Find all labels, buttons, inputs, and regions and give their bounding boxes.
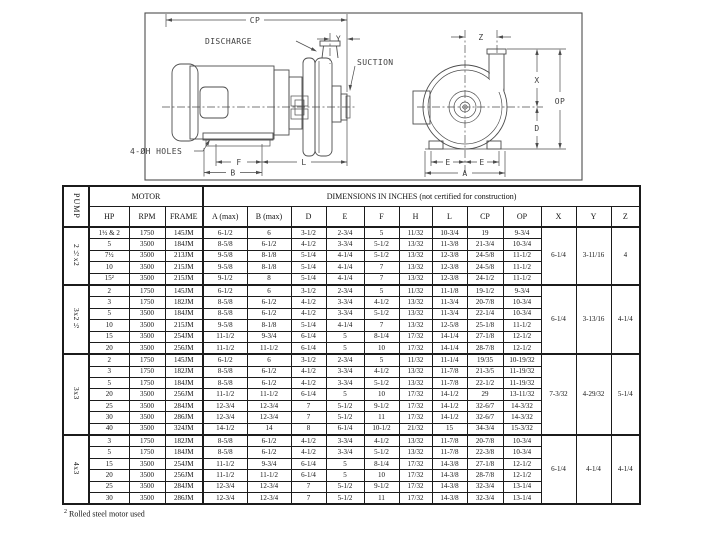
dim-cell: 6-1/2 bbox=[247, 435, 291, 447]
dim-cell: 32-3/4 bbox=[467, 492, 503, 504]
dim-cell: 6-1/4 bbox=[326, 423, 364, 435]
dim-cell: 5-1/2 bbox=[364, 378, 399, 389]
dim-cell: 4-1/4 bbox=[326, 250, 364, 261]
dim-cell: 5-1/2 bbox=[326, 492, 364, 504]
pump-size-cell: 3x3 bbox=[63, 354, 89, 435]
f-dim-label: F bbox=[236, 158, 241, 167]
dim-cell: 286JM bbox=[165, 492, 203, 504]
x-span-cell: 6-1/4 bbox=[541, 435, 576, 504]
dim-cell: 11-3/4 bbox=[432, 297, 467, 308]
y-span-cell: 3-13/16 bbox=[576, 285, 611, 354]
col-header-cp: CP bbox=[467, 207, 503, 228]
dim-cell: 17/32 bbox=[399, 412, 432, 423]
motor-end-cap bbox=[172, 64, 198, 141]
dim-cell: 4-1/2 bbox=[291, 447, 326, 458]
dim-cell: 19/35 bbox=[467, 354, 503, 366]
e-left-dim-label: E bbox=[445, 158, 450, 167]
dim-cell: 10-3/4 bbox=[503, 239, 541, 250]
header-row-2: HP RPM FRAME A (max) B (max) D E F H L C… bbox=[63, 207, 640, 228]
dim-cell: 17/32 bbox=[399, 342, 432, 354]
suction-leader bbox=[351, 66, 356, 87]
dim-cell: 4-1/2 bbox=[291, 378, 326, 389]
col-header-l: L bbox=[432, 207, 467, 228]
dim-cell: 4-1/4 bbox=[326, 273, 364, 285]
dim-cell: 2-3/4 bbox=[326, 227, 364, 239]
dim-cell: 14-1/2 bbox=[432, 389, 467, 400]
dim-cell: 3500 bbox=[129, 273, 165, 285]
dim-cell: 34-3/4 bbox=[467, 423, 503, 435]
dim-cell: 215JM bbox=[165, 273, 203, 285]
col-header-f: F bbox=[364, 207, 399, 228]
pump-size-text: 2½x2 bbox=[72, 244, 80, 266]
dim-cell: 40 bbox=[89, 423, 129, 435]
y-span-cell: 4-29/32 bbox=[576, 354, 611, 435]
col-header-rpm: RPM bbox=[129, 207, 165, 228]
dim-cell: 32-6/7 bbox=[467, 412, 503, 423]
dim-cell: 3-1/2 bbox=[291, 285, 326, 297]
dim-cell: 13-11/32 bbox=[503, 389, 541, 400]
dim-cell: 1½ & 2 bbox=[89, 227, 129, 239]
dim-cell: 1750 bbox=[129, 447, 165, 458]
table-row: 3x2½21750145JM6-1/263-1/22-3/4511/3211-1… bbox=[63, 285, 640, 297]
f-arrow-right bbox=[256, 160, 262, 163]
dim-cell: 5-1/2 bbox=[326, 412, 364, 423]
dim-cell: 7 bbox=[291, 400, 326, 411]
dim-cell: 20-7/8 bbox=[467, 297, 503, 308]
dim-cell: 12-3/4 bbox=[247, 492, 291, 504]
dim-cell: 7 bbox=[364, 320, 399, 331]
dim-cell: 3500 bbox=[129, 400, 165, 411]
dim-cell: 14-1/2 bbox=[432, 412, 467, 423]
y-arrow-left bbox=[324, 37, 330, 40]
e-right-arrow-outer bbox=[493, 160, 499, 163]
dim-cell: 6 bbox=[247, 285, 291, 297]
dim-cell: 2 bbox=[89, 354, 129, 366]
dim-cell: 32-3/4 bbox=[467, 481, 503, 492]
dim-cell: 17/32 bbox=[399, 389, 432, 400]
dim-cell: 6-1/2 bbox=[247, 366, 291, 377]
dim-cell: 324JM bbox=[165, 423, 203, 435]
dim-cell: 7½ bbox=[89, 250, 129, 261]
dim-cell: 21-3/4 bbox=[467, 239, 503, 250]
dim-cell: 254JM bbox=[165, 458, 203, 469]
dim-cell: 12-3/4 bbox=[203, 400, 247, 411]
dim-cell: 15 bbox=[89, 331, 129, 342]
spec-sheet-page: { "drawing": { "labels": { "cp": "CP", "… bbox=[0, 0, 704, 535]
dim-cell: 6-1/4 bbox=[291, 342, 326, 354]
dim-cell: 284JM bbox=[165, 400, 203, 411]
suction-label: SUCTION bbox=[357, 58, 394, 67]
col-header-x: X bbox=[541, 207, 576, 228]
dim-cell: 10-19/32 bbox=[503, 354, 541, 366]
dim-cell: 3-3/4 bbox=[326, 239, 364, 250]
dim-cell: 8 bbox=[291, 423, 326, 435]
dim-cell: 182JM bbox=[165, 297, 203, 308]
dim-cell: 215JM bbox=[165, 320, 203, 331]
dim-cell: 13/32 bbox=[399, 308, 432, 319]
dim-cell: 13/32 bbox=[399, 447, 432, 458]
dim-cell: 3500 bbox=[129, 239, 165, 250]
dim-cell: 5 bbox=[364, 354, 399, 366]
dim-cell: 254JM bbox=[165, 331, 203, 342]
dim-cell: 11-1/2 bbox=[247, 470, 291, 481]
dimension-table-section: PUMP MOTOR DIMENSIONS IN INCHES (not cer… bbox=[62, 185, 639, 519]
x-arrow-top bbox=[535, 49, 538, 55]
dim-cell: 4-1/2 bbox=[364, 435, 399, 447]
dim-cell: 17/32 bbox=[399, 400, 432, 411]
dim-cell: 22-1/4 bbox=[467, 308, 503, 319]
dim-cell: 17/32 bbox=[399, 331, 432, 342]
side-view-dimensions: CP Y DISCHARGE SUCTION 4-ØH HOLES F L B bbox=[130, 14, 394, 178]
footnote-marker: 2 bbox=[64, 509, 67, 515]
dim-cell: 3500 bbox=[129, 331, 165, 342]
dim-cell: 213JM bbox=[165, 250, 203, 261]
col-header-hp: HP bbox=[89, 207, 129, 228]
right-foot bbox=[487, 141, 501, 149]
dim-cell: 12-3/8 bbox=[432, 262, 467, 273]
dim-cell: 11-7/8 bbox=[432, 378, 467, 389]
pump-outline-drawing: CP Y DISCHARGE SUCTION 4-ØH HOLES F L B bbox=[0, 0, 704, 185]
dim-cell: 11-7/8 bbox=[432, 366, 467, 377]
d-arrow-bottom bbox=[535, 143, 538, 149]
dim-cell: 12-3/4 bbox=[203, 492, 247, 504]
dim-cell: 6-1/4 bbox=[291, 331, 326, 342]
z-span-cell: 4-1/4 bbox=[611, 435, 640, 504]
dim-cell: 12-1/2 bbox=[503, 342, 541, 354]
dim-cell: 3-3/4 bbox=[326, 447, 364, 458]
dim-cell: 3500 bbox=[129, 342, 165, 354]
suction-leader-arrow bbox=[349, 85, 352, 91]
dim-cell: 7 bbox=[364, 273, 399, 285]
a-dim-label: A bbox=[462, 169, 467, 178]
x-span-cell: 6-1/4 bbox=[541, 285, 576, 354]
x-dim-label: X bbox=[534, 76, 539, 85]
dim-cell: 5 bbox=[89, 239, 129, 250]
dim-cell: 20 bbox=[89, 342, 129, 354]
dim-cell: 184JM bbox=[165, 447, 203, 458]
dim-cell: 4-1/4 bbox=[326, 320, 364, 331]
col-header-e: E bbox=[326, 207, 364, 228]
dim-cell: 14-3/8 bbox=[432, 492, 467, 504]
dim-cell: 14-3/8 bbox=[432, 470, 467, 481]
dim-cell: 3500 bbox=[129, 320, 165, 331]
dim-cell: 10-1/2 bbox=[364, 423, 399, 435]
dim-cell: 22-1/2 bbox=[467, 378, 503, 389]
dim-cell: 28-7/8 bbox=[467, 342, 503, 354]
dim-cell: 13/32 bbox=[399, 273, 432, 285]
dim-cell: 3500 bbox=[129, 481, 165, 492]
dim-cell: 10-3/4 bbox=[503, 297, 541, 308]
dim-cell: 11-1/8 bbox=[432, 285, 467, 297]
l-dim-label: L bbox=[301, 158, 306, 167]
dim-cell: 5-1/2 bbox=[364, 447, 399, 458]
op-arrow-bottom bbox=[558, 143, 561, 149]
dim-cell: 3500 bbox=[129, 458, 165, 469]
dim-cell: 184JM bbox=[165, 378, 203, 389]
dim-cell: 11-1/2 bbox=[203, 458, 247, 469]
pump-column-header: PUMP bbox=[63, 186, 89, 227]
seal-housing-upper bbox=[291, 96, 308, 106]
z-arrow-right bbox=[497, 35, 503, 38]
dim-cell: 8-5/8 bbox=[203, 435, 247, 447]
dim-cell: 10-3/4 bbox=[503, 447, 541, 458]
dim-cell: 5-1/2 bbox=[326, 400, 364, 411]
dim-cell: 13/32 bbox=[399, 239, 432, 250]
dim-cell: 8-5/8 bbox=[203, 378, 247, 389]
dim-cell: 5 bbox=[326, 470, 364, 481]
dim-cell: 286JM bbox=[165, 412, 203, 423]
dim-cell: 14-3/8 bbox=[432, 481, 467, 492]
dim-cell: 256JM bbox=[165, 342, 203, 354]
dim-cell: 3500 bbox=[129, 412, 165, 423]
dim-cell: 3-3/4 bbox=[326, 378, 364, 389]
extension-lines-side bbox=[166, 14, 347, 177]
dim-cell: 8-1/4 bbox=[364, 331, 399, 342]
dim-cell: 25 bbox=[89, 400, 129, 411]
table-row: 4x331750182JM8-5/86-1/24-1/23-3/44-1/213… bbox=[63, 435, 640, 447]
dim-cell: 9-5/8 bbox=[203, 250, 247, 261]
dim-cell: 3-3/4 bbox=[326, 297, 364, 308]
dim-cell: 1750 bbox=[129, 435, 165, 447]
dim-cell: 8-5/8 bbox=[203, 297, 247, 308]
dim-cell: 13/32 bbox=[399, 250, 432, 261]
dim-cell: 12-3/4 bbox=[247, 412, 291, 423]
dim-cell: 6-1/2 bbox=[247, 378, 291, 389]
dim-cell: 11-1/2 bbox=[503, 320, 541, 331]
dim-cell: 11-7/8 bbox=[432, 447, 467, 458]
dim-cell: 27-1/8 bbox=[467, 331, 503, 342]
x-arrow-bottom bbox=[535, 101, 538, 107]
pump-header-text: PUMP bbox=[72, 193, 80, 219]
dim-cell: 7 bbox=[291, 481, 326, 492]
x-span-cell: 6-1/4 bbox=[541, 227, 576, 285]
pump-size-text: 3x2½ bbox=[72, 308, 80, 330]
dim-cell: 11-1/2 bbox=[203, 389, 247, 400]
b-dim-label: B bbox=[230, 169, 235, 178]
dim-cell: 4-1/4 bbox=[326, 262, 364, 273]
dim-cell: 14-3/8 bbox=[432, 458, 467, 469]
col-header-b-max: B (max) bbox=[247, 207, 291, 228]
a-arrow-left bbox=[425, 171, 431, 174]
dim-cell: 7 bbox=[364, 262, 399, 273]
dim-cell: 3-1/2 bbox=[291, 227, 326, 239]
z-arrow-left bbox=[459, 35, 465, 38]
dim-cell: 1750 bbox=[129, 297, 165, 308]
dim-cell: 8-1/8 bbox=[247, 250, 291, 261]
dim-cell: 9-1/2 bbox=[364, 400, 399, 411]
l-arrow-left bbox=[262, 160, 268, 163]
dim-cell: 13/32 bbox=[399, 297, 432, 308]
dim-cell: 15 bbox=[89, 458, 129, 469]
dim-cell: 6-1/2 bbox=[247, 297, 291, 308]
b-arrow-left bbox=[204, 171, 210, 174]
dim-cell: 3500 bbox=[129, 262, 165, 273]
dim-cell: 8 bbox=[247, 273, 291, 285]
dim-cell: 3-3/4 bbox=[326, 366, 364, 377]
e-left-arrow-inner bbox=[459, 160, 465, 163]
dim-cell: 3 bbox=[89, 297, 129, 308]
pipe-knockout bbox=[490, 54, 504, 92]
dim-cell: 5-1/2 bbox=[326, 481, 364, 492]
dim-cell: 8-5/8 bbox=[203, 366, 247, 377]
pump-size-text: 4x3 bbox=[72, 462, 80, 475]
dim-cell: 28-7/8 bbox=[467, 470, 503, 481]
dim-cell: 19 bbox=[467, 227, 503, 239]
col-header-h: H bbox=[399, 207, 432, 228]
dim-cell: 8-5/8 bbox=[203, 239, 247, 250]
dim-cell: 12-1/2 bbox=[503, 331, 541, 342]
dim-cell: 8-1/8 bbox=[247, 262, 291, 273]
dim-cell: 11-1/2 bbox=[503, 273, 541, 285]
dim-cell: 10-3/4 bbox=[432, 227, 467, 239]
end-side-flange bbox=[413, 91, 430, 124]
dim-cell: 11-19/32 bbox=[503, 366, 541, 377]
dim-cell: 10 bbox=[89, 320, 129, 331]
footnote-text: Rolled steel motor used bbox=[69, 510, 145, 519]
dim-cell: 5 bbox=[89, 447, 129, 458]
dim-cell: 12-5/8 bbox=[432, 320, 467, 331]
dim-cell: 11-1/2 bbox=[203, 470, 247, 481]
y-span-cell: 4-1/4 bbox=[576, 435, 611, 504]
dim-cell: 11 bbox=[364, 492, 399, 504]
dim-cell: 9-1/2 bbox=[203, 273, 247, 285]
dim-cell: 14 bbox=[247, 423, 291, 435]
dim-cell: 10 bbox=[364, 389, 399, 400]
dim-cell: 9-3/4 bbox=[503, 285, 541, 297]
z-span-cell: 4 bbox=[611, 227, 640, 285]
col-header-op: OP bbox=[503, 207, 541, 228]
dim-cell: 145JM bbox=[165, 354, 203, 366]
dim-cell: 12-3/8 bbox=[432, 273, 467, 285]
col-header-a-max: A (max) bbox=[203, 207, 247, 228]
e-right-dim-label: E bbox=[479, 158, 484, 167]
dim-cell: 6-1/2 bbox=[247, 308, 291, 319]
dim-cell: 17/32 bbox=[399, 481, 432, 492]
dim-cell: 27-1/8 bbox=[467, 458, 503, 469]
dim-cell: 11-1/2 bbox=[203, 331, 247, 342]
dim-cell: 1750 bbox=[129, 227, 165, 239]
dim-cell: 182JM bbox=[165, 366, 203, 377]
seal-housing-lower bbox=[291, 109, 308, 119]
l-arrow-right bbox=[341, 160, 347, 163]
op-dim-label: OP bbox=[555, 97, 565, 106]
dim-cell: 8-1/4 bbox=[364, 458, 399, 469]
dim-cell: 215JM bbox=[165, 262, 203, 273]
dim-cell: 14-1/2 bbox=[432, 400, 467, 411]
dimensions-table: PUMP MOTOR DIMENSIONS IN INCHES (not cer… bbox=[62, 185, 641, 505]
dim-cell: 184JM bbox=[165, 308, 203, 319]
dim-cell: 6-1/2 bbox=[203, 354, 247, 366]
dim-cell: 5 bbox=[326, 342, 364, 354]
dim-cell: 6-1/4 bbox=[291, 470, 326, 481]
dim-cell: 5-1/2 bbox=[364, 308, 399, 319]
dim-cell: 11-1/2 bbox=[247, 342, 291, 354]
dim-cell: 3 bbox=[89, 435, 129, 447]
cp-arrow-left bbox=[166, 18, 172, 22]
header-row-1: PUMP MOTOR DIMENSIONS IN INCHES (not cer… bbox=[63, 186, 640, 207]
dim-cell: 13/32 bbox=[399, 378, 432, 389]
dim-cell: 11-1/2 bbox=[203, 342, 247, 354]
footnote: 2Rolled steel motor used bbox=[64, 509, 639, 519]
motor-group-header: MOTOR bbox=[89, 186, 203, 207]
cp-arrow-right bbox=[341, 18, 347, 22]
dim-cell: 20 bbox=[89, 470, 129, 481]
dimensions-group-header: DIMENSIONS IN INCHES (not certified for … bbox=[203, 186, 640, 207]
dim-cell: 6 bbox=[247, 227, 291, 239]
dim-cell: 7 bbox=[291, 492, 326, 504]
y-dim-label: Y bbox=[336, 35, 341, 44]
dim-cell: 5 bbox=[326, 458, 364, 469]
dim-cell: 5-1/2 bbox=[364, 239, 399, 250]
table-body: 2½x21½ & 21750145JM6-1/263-1/22-3/4511/3… bbox=[63, 227, 640, 504]
dim-cell: 5 bbox=[364, 227, 399, 239]
dim-cell: 3-1/2 bbox=[291, 354, 326, 366]
dim-cell: 3500 bbox=[129, 250, 165, 261]
dim-cell: 19-1/2 bbox=[467, 285, 503, 297]
dim-cell: 9-3/4 bbox=[503, 227, 541, 239]
dim-cell: 13-1/4 bbox=[503, 481, 541, 492]
dim-cell: 11/32 bbox=[399, 354, 432, 366]
casing-nose bbox=[332, 86, 341, 122]
dim-cell: 256JM bbox=[165, 389, 203, 400]
dim-cell: 145JM bbox=[165, 227, 203, 239]
dim-cell: 4-1/2 bbox=[364, 297, 399, 308]
left-foot bbox=[429, 141, 443, 149]
dim-cell: 11-1/2 bbox=[503, 250, 541, 261]
dim-cell: 30 bbox=[89, 412, 129, 423]
dim-cell: 13/32 bbox=[399, 435, 432, 447]
dim-cell: 17/32 bbox=[399, 458, 432, 469]
dim-cell: 11-3/8 bbox=[432, 239, 467, 250]
dim-cell: 8-5/8 bbox=[203, 447, 247, 458]
dim-cell: 4-1/2 bbox=[291, 239, 326, 250]
dim-cell: 14-1/4 bbox=[432, 342, 467, 354]
dim-cell: 11-1/4 bbox=[432, 354, 467, 366]
dim-cell: 14-1/4 bbox=[432, 331, 467, 342]
y-span-cell: 3-11/16 bbox=[576, 227, 611, 285]
dim-cell: 3500 bbox=[129, 423, 165, 435]
col-header-frame: FRAME bbox=[165, 207, 203, 228]
dim-cell: 8-1/8 bbox=[247, 320, 291, 331]
dim-cell: 6-1/2 bbox=[247, 447, 291, 458]
mounting-base-pad bbox=[206, 140, 270, 146]
dim-cell: 284JM bbox=[165, 481, 203, 492]
dim-cell: 15-3/32 bbox=[503, 423, 541, 435]
table-row: 2½x21½ & 21750145JM6-1/263-1/22-3/4511/3… bbox=[63, 227, 640, 239]
dim-cell: 12-3/8 bbox=[432, 250, 467, 261]
a-arrow-right bbox=[499, 171, 505, 174]
dim-cell: 21-3/5 bbox=[467, 366, 503, 377]
dim-cell: 10 bbox=[89, 262, 129, 273]
dim-cell: 5 bbox=[89, 308, 129, 319]
dim-cell: 9-5/8 bbox=[203, 320, 247, 331]
dim-cell: 9-1/2 bbox=[364, 481, 399, 492]
dim-cell: 20 bbox=[89, 389, 129, 400]
z-span-cell: 5-1/4 bbox=[611, 354, 640, 435]
dim-cell: 15² bbox=[89, 273, 129, 285]
dim-cell: 12-3/4 bbox=[203, 412, 247, 423]
dim-cell: 15 bbox=[432, 423, 467, 435]
dim-cell: 13-1/4 bbox=[503, 492, 541, 504]
dim-cell: 6-1/2 bbox=[203, 285, 247, 297]
dim-cell: 11-1/2 bbox=[503, 262, 541, 273]
dim-cell: 182JM bbox=[165, 435, 203, 447]
dim-cell: 6 bbox=[247, 354, 291, 366]
col-header-y: Y bbox=[576, 207, 611, 228]
z-span-cell: 4-1/4 bbox=[611, 285, 640, 354]
dim-cell: 14-1/2 bbox=[203, 423, 247, 435]
dim-cell: 3500 bbox=[129, 308, 165, 319]
